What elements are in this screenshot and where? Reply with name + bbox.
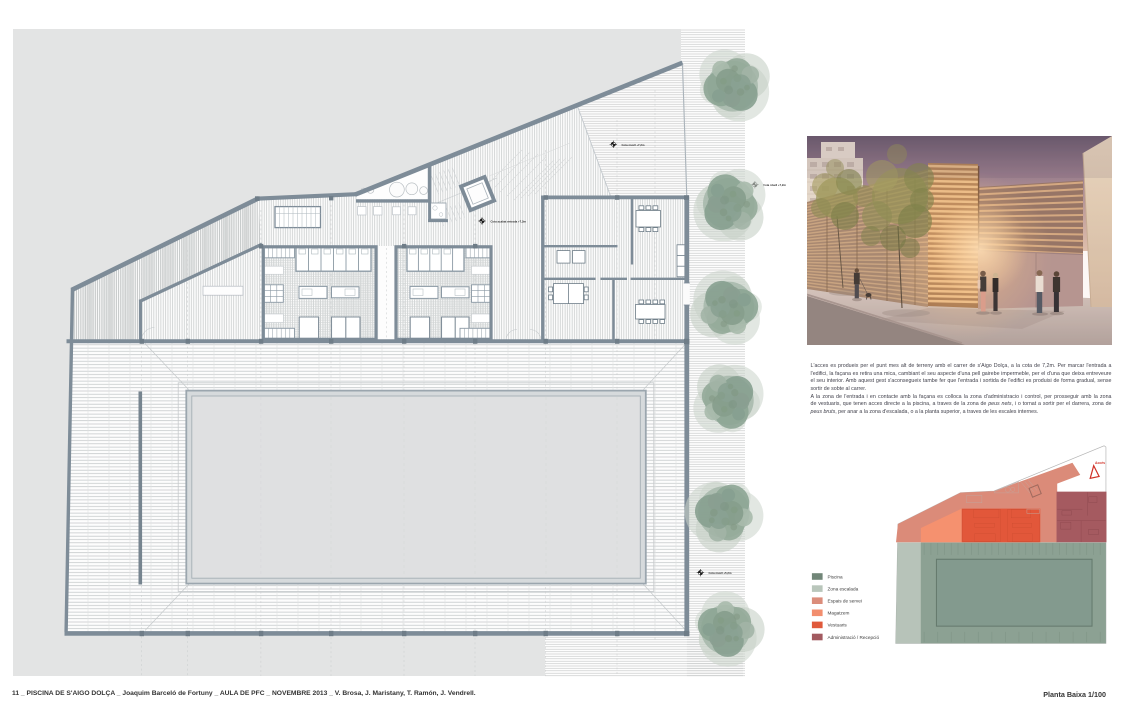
svg-text:Magatzem: Magatzem [828, 611, 850, 616]
svg-text:Piscina: Piscina [828, 574, 844, 579]
svg-text:Accés: Accés [1095, 461, 1105, 465]
svg-text:Cota nivell +7,2m: Cota nivell +7,2m [763, 183, 786, 187]
svg-text:Vestuaris: Vestuaris [828, 623, 848, 628]
svg-text:Cota acabat entrada +7,2m: Cota acabat entrada +7,2m [491, 220, 527, 224]
svg-text:Espais de servei: Espais de servei [828, 599, 862, 604]
svg-text:Administració / Recepció: Administració / Recepció [828, 635, 880, 640]
svg-text:Zona escalada: Zona escalada [828, 586, 859, 591]
svg-text:Cota nivell +7,2m: Cota nivell +7,2m [622, 143, 645, 147]
svg-text:Cota nivell +5,2m: Cota nivell +5,2m [709, 571, 732, 575]
